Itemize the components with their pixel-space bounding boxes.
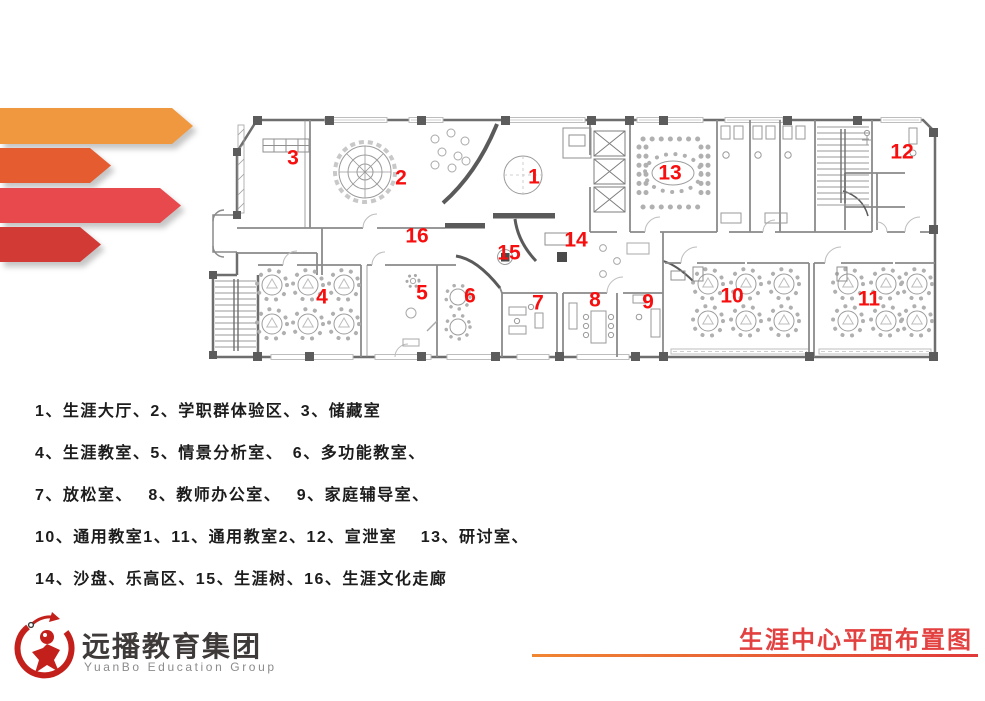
- room-number-14: 14: [564, 230, 587, 251]
- ribbon-orange: [0, 108, 193, 144]
- yuanbo-logo-icon: [14, 612, 76, 686]
- room-number-16: 16: [405, 226, 428, 247]
- page-title: 生涯中心平面布置图: [739, 620, 973, 655]
- room-number-8: 8: [589, 290, 601, 311]
- legend-line-3: 7、放松室、 8、教师办公室、 9、家庭辅导室、: [35, 488, 529, 504]
- room-number-13: 13: [658, 163, 681, 184]
- room-number-12: 12: [890, 142, 913, 163]
- legend-line-4: 10、通用教室1、11、通用教室2、12、宣泄室 13、研讨室、: [35, 530, 529, 546]
- ribbon-vermilion: [0, 148, 111, 183]
- title-underline: [532, 654, 978, 657]
- legend-line-5: 14、沙盘、乐高区、15、生涯树、16、生涯文化走廊: [35, 572, 529, 588]
- room-number-7: 7: [532, 293, 544, 314]
- ribbon-dark-red: [0, 227, 101, 262]
- legend-line-1: 1、生涯大厅、2、学职群体验区、3、储藏室: [35, 404, 529, 420]
- ribbon-dark-red-shape: [0, 227, 101, 262]
- logo-en-text: YuanBo Education Group: [84, 660, 277, 674]
- room-number-11: 11: [858, 289, 880, 310]
- ribbon-red: [0, 188, 181, 223]
- room-number-1: 1: [528, 167, 540, 188]
- room-number-5: 5: [416, 283, 428, 304]
- ribbon-orange-shape: [0, 108, 193, 144]
- room-number-6: 6: [464, 286, 476, 307]
- company-logo: 远播教育集团 YuanBo Education Group: [12, 608, 342, 688]
- room-number-10: 10: [720, 286, 743, 307]
- slide: 12345678910111213141516 1、生涯大厅、2、学职群体验区、…: [0, 0, 985, 701]
- room-number-4: 4: [316, 287, 328, 308]
- room-number-9: 9: [642, 292, 654, 313]
- legend: 1、生涯大厅、2、学职群体验区、3、储藏室 4、生涯教室、5、情景分析室、 6、…: [35, 404, 529, 614]
- room-number-3: 3: [287, 148, 299, 169]
- ribbon-red-shape: [0, 188, 181, 223]
- room-number-2: 2: [395, 168, 407, 189]
- room-number-15: 15: [497, 243, 520, 264]
- logo-cn-text: 远播教育集团: [82, 625, 262, 665]
- ribbon-vermilion-shape: [0, 148, 111, 183]
- legend-line-2: 4、生涯教室、5、情景分析室、 6、多功能教室、: [35, 446, 529, 462]
